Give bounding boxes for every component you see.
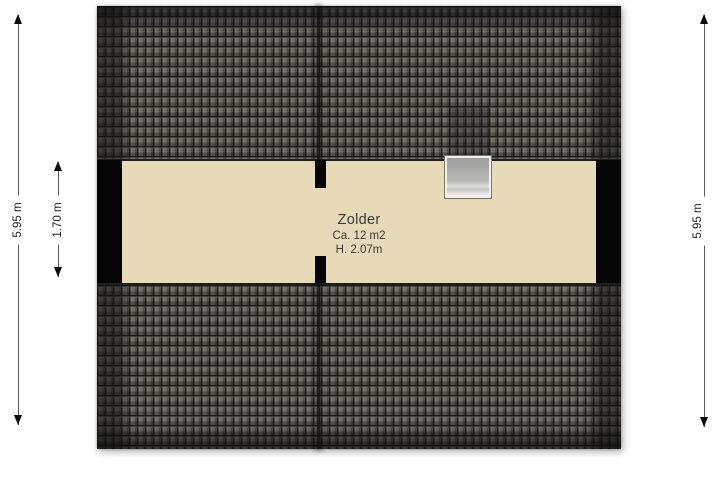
roof-ridge-divider-bottom — [317, 283, 320, 449]
room-name: Zolder — [122, 212, 596, 229]
arrow-down-icon — [54, 267, 62, 277]
wall-right — [596, 160, 621, 283]
arrow-down-icon — [14, 415, 22, 425]
arrow-up-icon — [14, 14, 22, 24]
arrow-up-icon — [54, 161, 62, 171]
roof-ridge-divider-top — [317, 6, 320, 161]
wall-stub-top — [315, 160, 326, 188]
skylight-shaft-overlay — [449, 106, 489, 162]
skylight-window-icon — [445, 156, 491, 198]
dimension-label: 5.95 m — [11, 195, 25, 244]
room-ceiling-height: H. 2.07m — [122, 243, 596, 257]
roof-section-bottom — [97, 283, 621, 449]
roof-section-top — [97, 6, 621, 161]
room-label-block: Zolder Ca. 12 m2 H. 2.07m — [122, 212, 596, 257]
floorplan: Zolder Ca. 12 m2 H. 2.07m — [97, 6, 621, 449]
dimension-label: 5.95 m — [691, 196, 705, 245]
dimension-label: 1.70 m — [51, 195, 65, 244]
arrow-down-icon — [700, 417, 708, 427]
wall-stub-bottom — [315, 256, 326, 283]
room-area: Ca. 12 m2 — [122, 229, 596, 243]
wall-left — [97, 160, 122, 283]
arrow-up-icon — [700, 14, 708, 24]
